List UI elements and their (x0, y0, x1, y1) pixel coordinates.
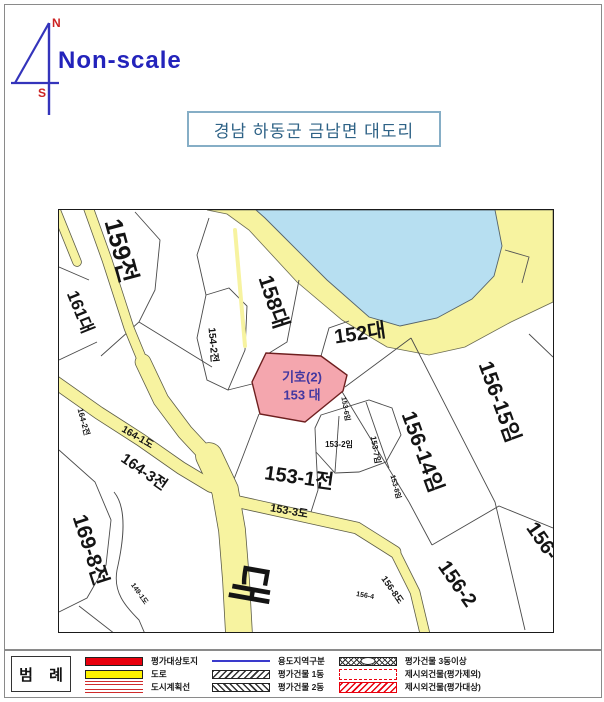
legend-symbol-red-dashed-box (339, 669, 397, 680)
legend-symbol-hatch-back (212, 683, 270, 692)
legend-label: 도시계획선 (151, 681, 190, 693)
legend-label: 제시외건물(평가대상) (405, 681, 481, 693)
legend-label: 제시외건물(평가제외) (405, 668, 481, 680)
legend-label: 평가대상토지 (151, 655, 198, 667)
legend-label: 용도지역구분 (278, 655, 325, 667)
legend-item: 제시외건물(평가대상) (339, 681, 481, 693)
legend-label: 평가건물 2동 (278, 681, 324, 693)
cadastral-map: 159전161대158대154-2전152대156-15임156-14임153-… (58, 209, 554, 633)
legend-item: 도로 (85, 668, 198, 680)
legend-bar: 범 례 평가대상토지 도로 도시계획선 용도지역구분 평가건물 1동 (5, 649, 601, 697)
legend-item: 용도지역구분 (212, 655, 325, 667)
legend-column-2: 용도지역구분 평가건물 1동 평가건물 2동 (212, 655, 325, 694)
legend-item: 평가대상토지 (85, 655, 198, 667)
legend-label: 평가건물 3동이상 (405, 655, 467, 667)
location-title-box: 경남 하동군 금남면 대도리 (187, 111, 441, 147)
scale-note: Non-scale (58, 47, 182, 75)
location-title: 경남 하동군 금남면 대도리 (214, 117, 414, 142)
compass-south-label: S (38, 86, 46, 100)
legend-item: 평가건물 2동 (212, 681, 325, 693)
legend-symbol-crisscross-ellipse (339, 657, 397, 666)
legend-symbol-hatch-forward (212, 670, 270, 679)
compass-north-label: N (52, 16, 61, 30)
legend-symbol-red-double-line (85, 681, 143, 693)
document-page: N S Non-scale 경남 하동군 금남면 대도리 (4, 4, 602, 698)
legend-symbol-ellipse (360, 657, 375, 665)
legend-symbol-blue-line (212, 660, 270, 662)
subject-parcel-code: 기호(2) (282, 368, 322, 386)
legend-title: 범 례 (11, 656, 71, 692)
legend-item: 제시외건물(평가제외) (339, 668, 481, 680)
legend-item: 평가건물 1동 (212, 668, 325, 680)
legend-item: 도시계획선 (85, 681, 198, 693)
compass-hypotenuse (15, 23, 49, 83)
legend-column-3: 평가건물 3동이상 제시외건물(평가제외) 제시외건물(평가대상) (339, 655, 481, 694)
legend-item: 평가건물 3동이상 (339, 655, 481, 667)
subject-parcel-number: 153 대 (282, 386, 322, 404)
legend-label: 평가건물 1동 (278, 668, 324, 680)
legend-symbol-red-hatch-box (339, 682, 397, 693)
parcel-label: 대 (224, 560, 274, 608)
legend-symbol-yellow-fill (85, 670, 143, 679)
legend-symbol-red-fill (85, 657, 143, 666)
subject-parcel-label: 기호(2) 153 대 (282, 368, 322, 403)
parcel-label: 154-2전 (206, 327, 219, 363)
legend-column-1: 평가대상토지 도로 도시계획선 (85, 655, 198, 694)
legend-label: 도로 (151, 668, 167, 680)
parcel-label: 153-2임 (325, 441, 353, 449)
